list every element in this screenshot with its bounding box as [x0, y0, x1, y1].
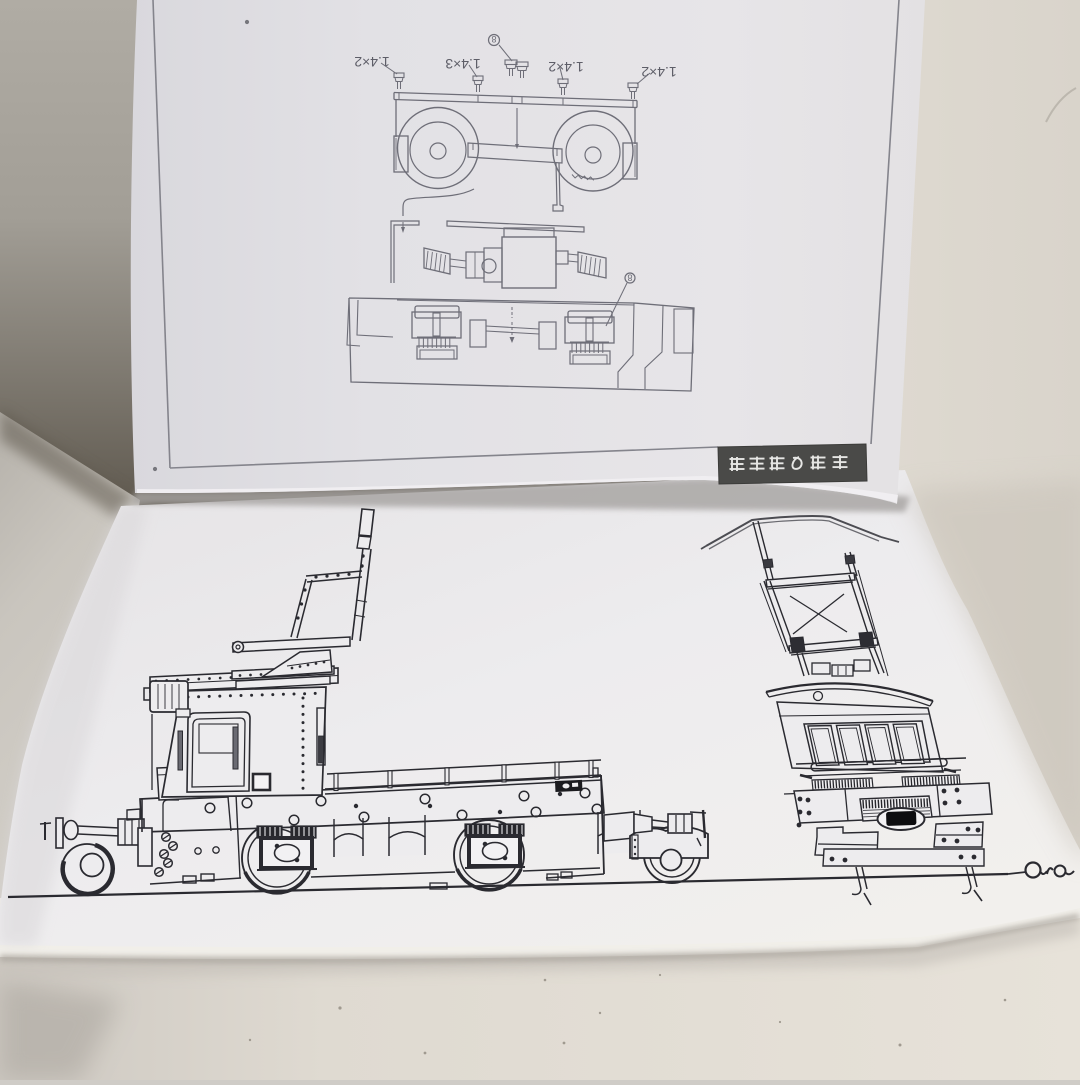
svg-text:1.4×2: 1.4×2 [641, 64, 677, 80]
svg-text:1.4×2: 1.4×2 [354, 54, 390, 70]
svg-text:8: 8 [491, 34, 496, 44]
svg-text:1.4×2: 1.4×2 [548, 59, 584, 75]
svg-text:8: 8 [627, 273, 632, 283]
svg-text:1.4×3: 1.4×3 [445, 56, 481, 72]
